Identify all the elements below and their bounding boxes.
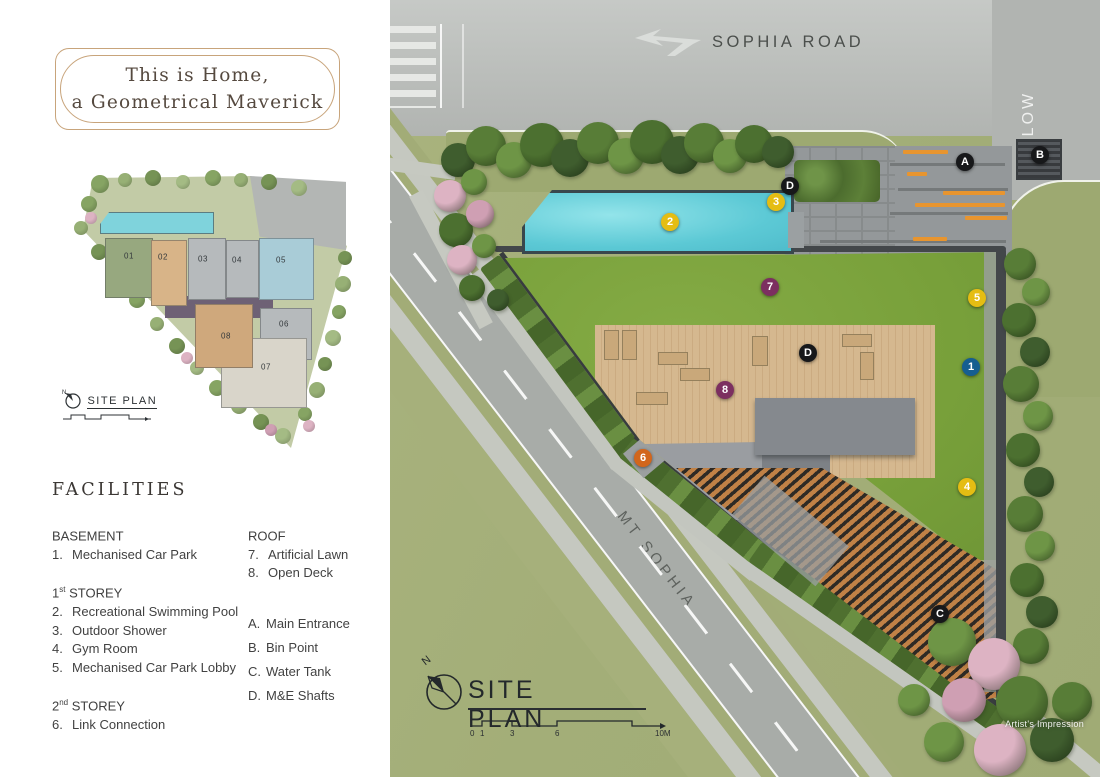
facility-item-text: Gym Room [72,641,138,656]
mini-tree [91,175,109,193]
deck-lounger [752,336,768,366]
mini-tree [181,352,193,364]
scale-label: 0 [470,729,475,738]
facility-item-number: 7. [248,546,268,565]
title-line-2: a Geometrical Maverick [56,89,339,116]
mini-tree [265,424,277,436]
facilities-heading: FACILITIES [52,480,382,500]
facility-item-number: 8. [248,564,268,583]
tree [1025,531,1055,561]
pool-steps [788,212,804,248]
mini-unit-number-07: 07 [261,363,271,372]
orange-road-stripe [965,216,1007,220]
facility-item-text: Artificial Lawn [268,547,348,562]
deck-lounger [604,330,619,360]
north-arrow-icon: N [418,650,466,720]
tree [924,722,964,762]
facility-item-number: 3. [52,622,72,641]
facility-item-number: 6. [52,716,72,735]
slow-road-marking: SLOW [1020,20,1038,150]
mini-tree [309,382,325,398]
tree [487,289,509,311]
mini-tree [74,221,88,235]
map-marker-2: 2 [661,213,679,231]
facility-item: 5.Mechanised Car Park Lobby [52,659,248,678]
facilities-group-header: ROOF [248,524,388,546]
legend-item-text: Water Tank [266,664,331,679]
orange-road-stripe [943,191,1005,195]
sophia-road-label: SOPHIA ROAD [712,33,864,52]
facility-item-text: Recreational Swimming Pool [72,604,238,619]
mini-tree [176,175,190,189]
map-marker-3: 3 [767,193,785,211]
legend-item: B.Bin Point [248,636,388,660]
svg-text:N: N [420,654,434,668]
facilities-group: 1st STOREY2.Recreational Swimming Pool3.… [52,581,248,677]
grass-verge-right [1000,180,1100,397]
tree [459,275,485,301]
title-line-1: This is Home, [56,62,339,89]
legend-item-letter: C. [248,660,266,684]
mini-scale-bar [61,411,153,423]
map-marker-8: 8 [716,381,734,399]
facility-item: 6.Link Connection [52,716,248,735]
facility-item-text: Open Deck [268,565,333,580]
tree [1002,303,1036,337]
side-walkway [984,252,996,692]
facilities-group-header: 1st STOREY [52,581,248,603]
scale-label: 10M [655,729,670,738]
mini-tree [275,428,291,444]
facility-item: 4.Gym Room [52,640,248,659]
mini-tree [261,174,277,190]
mini-tree [338,251,352,265]
facility-item-number: 2. [52,603,72,622]
mini-unit-number-06: 06 [279,320,289,329]
lane-line [462,24,464,108]
facilities-group-header: 2nd STOREY [52,694,248,716]
tree [1026,596,1058,628]
legend-item-letter: D. [248,684,266,708]
tree [461,169,487,195]
mini-tree [318,357,332,371]
facility-item: 3.Outdoor Shower [52,622,248,641]
mini-tree [205,170,221,186]
legend-item: C.Water Tank [248,660,388,684]
left-panel: This is Home, a Geometrical Maverick 010… [0,0,390,777]
legend-item: D.M&E Shafts [248,684,388,708]
tree [466,200,494,228]
mini-north-arrow-icon: N [61,388,83,410]
facility-item-text: Outdoor Shower [72,623,167,638]
mini-tree [325,330,341,346]
mini-unit-number-03: 03 [198,255,208,264]
mini-tree [169,338,185,354]
mini-tree [150,317,164,331]
orange-road-stripe [907,172,927,176]
tree [1052,682,1092,722]
facilities-right-column: ROOF7.Artificial Lawn8.Open Deck A.Main … [248,524,388,708]
map-marker-6: 6 [634,449,652,467]
legend-item-letter: B. [248,636,266,660]
mini-tree [335,276,351,292]
site-plan-map: SOPHIA ROAD SLOW MT SOPHIA [390,0,1100,777]
facility-item-text: Link Connection [72,717,165,732]
mini-tree [145,170,161,186]
map-marker-1: 1 [962,358,980,376]
facilities-left-column: BASEMENT1.Mechanised Car Park1st STOREY2… [52,524,248,751]
facility-item-text: Mechanised Car Park [72,547,197,562]
facility-item-number: 5. [52,659,72,678]
lane-line-dark [890,212,1008,215]
deck-lounger [860,352,874,380]
legend-item: A.Main Entrance [248,612,388,636]
brochure-page: This is Home, a Geometrical Maverick 010… [0,0,1100,777]
facility-item: 7.Artificial Lawn [248,546,388,565]
map-marker-D: D [781,177,799,195]
mini-tree [332,305,346,319]
mini-swimming-pool [100,212,214,234]
mini-site-plan-text: SITE PLAN [87,395,157,409]
title-plaque: This is Home, a Geometrical Maverick [55,48,340,130]
map-marker-4: 4 [958,478,976,496]
orange-road-stripe [903,150,948,154]
mini-tree [85,212,97,224]
artists-impression-note: Artist's Impression [1005,719,1084,729]
map-marker-B: B [1031,146,1049,164]
tree [1020,337,1050,367]
mini-site-plan-label: N SITE PLAN [61,388,221,428]
facility-item: 8.Open Deck [248,564,388,583]
shrub-planter [794,160,880,202]
scale-bar: 013610M [470,712,670,738]
mini-unit-block-04 [226,240,259,298]
svg-text:N: N [62,390,66,396]
building-roof [755,398,915,455]
tree [974,724,1026,776]
mini-unit-number-01: 01 [124,252,134,261]
tree [942,678,986,722]
facility-item-number: 4. [52,640,72,659]
map-marker-C: C [931,605,949,623]
mini-tree [303,420,315,432]
deck-lounger [636,392,668,405]
swimming-pool [522,190,794,254]
mini-unit-block-01 [105,238,153,298]
orange-road-stripe [915,203,1005,207]
facility-item-number: 1. [52,546,72,565]
deck-lounger [680,368,710,381]
orange-road-stripe [913,237,947,241]
road-arrow-marking [623,26,705,66]
map-site-plan-label: N SITE PLAN 013610M [418,650,466,725]
tree [1006,433,1040,467]
mini-tree [291,180,307,196]
legend-item-text: Bin Point [266,640,318,655]
tree [1007,496,1043,532]
facility-item: 1.Mechanised Car Park [52,546,248,565]
mini-tree [298,407,312,421]
mini-unit-number-04: 04 [232,256,242,265]
mini-tree [81,196,97,212]
facility-item-text: Mechanised Car Park Lobby [72,660,236,675]
map-marker-A: A [956,153,974,171]
scale-label: 1 [480,729,485,738]
deck-lounger [622,330,637,360]
facilities-group-header: BASEMENT [52,524,248,546]
map-marker-D: D [799,344,817,362]
tree [1023,401,1053,431]
facilities-group: ROOF7.Artificial Lawn8.Open Deck [248,524,388,583]
deck-lounger [842,334,872,347]
mini-unit-number-08: 08 [221,332,231,341]
lane-line [440,24,442,108]
tree [1024,467,1054,497]
mini-unit-number-05: 05 [276,256,286,265]
tree [762,136,794,168]
facility-item: 2.Recreational Swimming Pool [52,603,248,622]
lane-line-dark [890,163,1005,166]
facilities-section: FACILITIES BASEMENT1.Mechanised Car Park… [52,480,382,500]
deck-lounger [658,352,688,365]
map-marker-5: 5 [968,289,986,307]
legend-item-text: M&E Shafts [266,688,335,703]
scale-label: 6 [555,729,560,738]
mini-site-plan: 0102030405060708 N SITE PLAN [55,168,365,453]
legend-item-letter: A. [248,612,266,636]
tree [1010,563,1044,597]
tree [898,684,930,716]
tree [472,234,496,258]
scale-label: 3 [510,729,515,738]
mini-unit-block-02 [151,240,187,306]
mini-unit-number-02: 02 [158,253,168,262]
page-title: This is Home, a Geometrical Maverick [56,49,339,129]
map-marker-7: 7 [761,278,779,296]
tree [1003,366,1039,402]
mini-unit-block-03 [188,238,226,300]
tree [1022,278,1050,306]
legend-item-text: Main Entrance [266,616,350,631]
facilities-legend: A.Main EntranceB.Bin PointC.Water TankD.… [248,612,388,708]
zebra-crossing [390,26,436,108]
facilities-group: 2nd STOREY6.Link Connection [52,694,248,734]
facilities-group: BASEMENT1.Mechanised Car Park [52,524,248,564]
mini-tree [234,173,248,187]
tree [1004,248,1036,280]
mini-tree [118,173,132,187]
mini-unit-block-05 [259,238,314,300]
